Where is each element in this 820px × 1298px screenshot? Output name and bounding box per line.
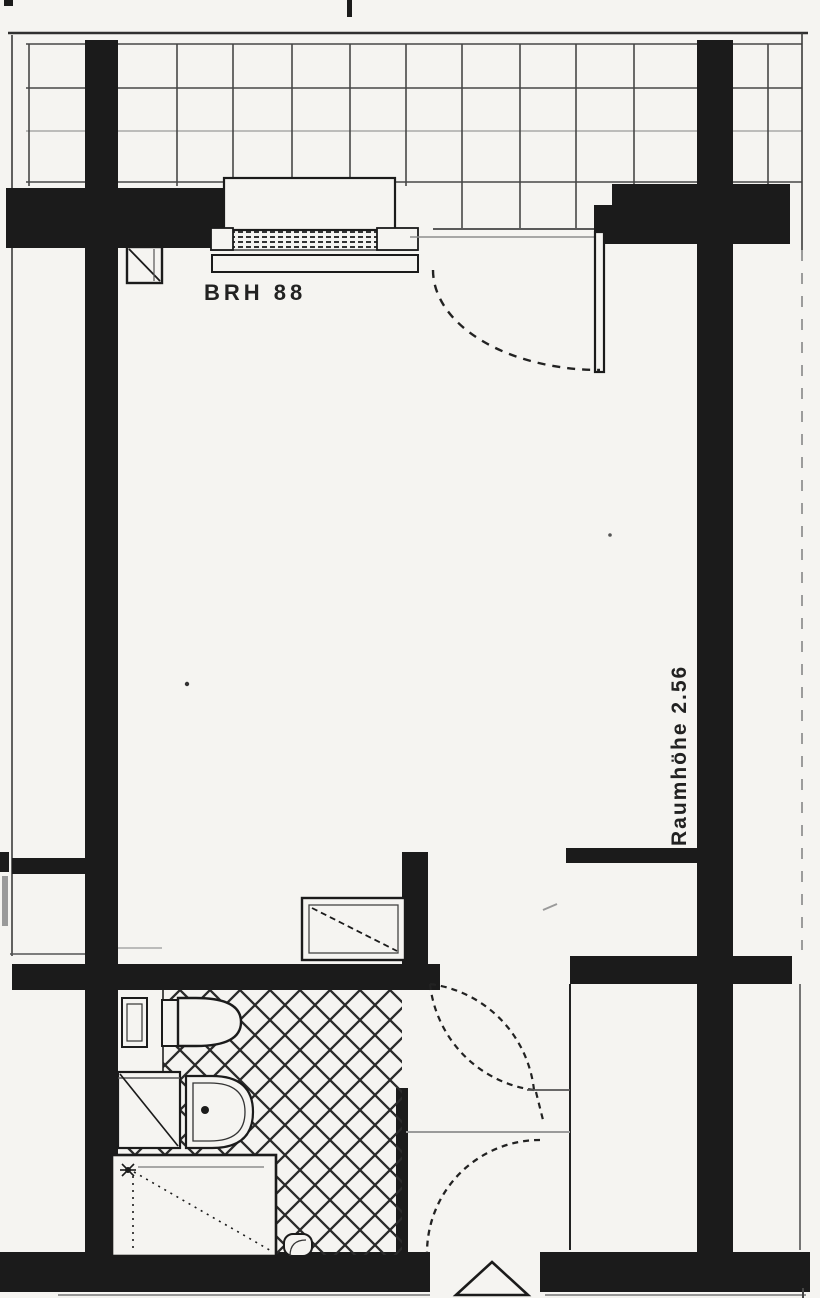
wall-top-left [6, 188, 228, 248]
top-reference-tick [347, 0, 352, 17]
interior-shaft-box-icon [302, 898, 405, 960]
door-jamb-notch [588, 184, 612, 205]
floor-plan-drawing: BRH 88 Raumhöhe 2.56 [0, 0, 820, 1298]
facade-gray-mark [2, 876, 8, 926]
room-height-label: Raumhöhe 2.56 [668, 665, 691, 846]
wall-bottom-left [0, 1252, 430, 1292]
wall-left-tick [0, 852, 9, 872]
floor-drain-icon [284, 1234, 312, 1256]
wall-mid-right [566, 848, 697, 863]
wall-left-connector [12, 858, 85, 874]
parapet-height-label: BRH 88 [204, 280, 306, 305]
wall-corridor-top [570, 956, 792, 984]
balcony-door-leaf [595, 232, 604, 372]
washbasin-icon [186, 1076, 253, 1148]
window-icon [210, 178, 418, 272]
washbasin-drain-dot [201, 1106, 209, 1114]
bathroom [112, 990, 402, 1256]
bathtub-icon [112, 1155, 276, 1256]
toilet-icon [162, 998, 241, 1046]
shaft-box-icon [127, 247, 162, 283]
shower-square-icon [118, 1072, 180, 1148]
sill-end-right [377, 228, 418, 250]
sill-end-left [211, 228, 233, 250]
cistern-icon [122, 998, 147, 1047]
floor-plan-sheet: BRH 88 Raumhöhe 2.56 [0, 0, 820, 1298]
wall-bottom-right [540, 1252, 810, 1292]
top-corner-mark [4, 0, 13, 6]
window-sill-outer [212, 255, 418, 272]
wall-bath-top [12, 964, 440, 990]
wall-top-right [594, 184, 790, 244]
